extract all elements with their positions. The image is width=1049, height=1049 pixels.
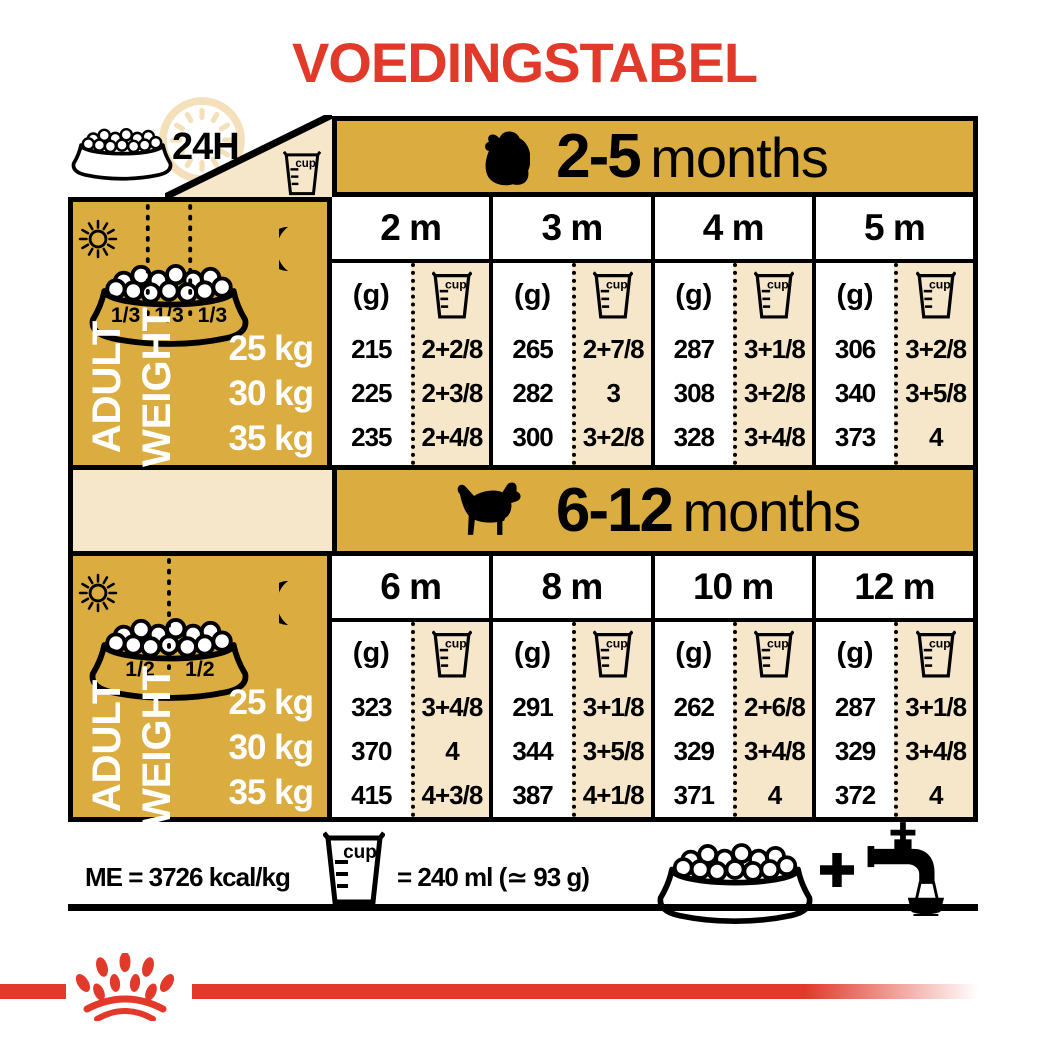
grams-value: 265 — [493, 327, 572, 371]
cup-value: 4+3/8 — [415, 773, 490, 817]
grams-value: 329 — [816, 729, 895, 773]
weight-rows-2: 25 kg 30 kg 35 kg — [229, 680, 314, 815]
svg-text:cup: cup — [445, 636, 467, 650]
age-range: 6-12 — [556, 476, 672, 545]
cup-value: 3+1/8 — [898, 686, 973, 730]
moon-icon — [279, 224, 311, 274]
feeding-grid-2-5-months: 2 m (g) 215 225 235 cup 2+2/8 2+3 — [332, 197, 978, 470]
cup-value: 4 — [898, 773, 973, 817]
grams-value: 323 — [332, 686, 411, 730]
weight-row: 30 kg — [229, 725, 314, 770]
grams-value: 282 — [493, 371, 572, 415]
cup-value: 3+4/8 — [737, 415, 812, 459]
svg-text:cup: cup — [767, 278, 789, 292]
brand-stripe-left — [0, 984, 66, 999]
cup-icon-label: cup — [295, 158, 315, 170]
cup-value: 3+4/8 — [415, 686, 490, 730]
month-header: 6 m — [332, 556, 489, 622]
grams-value: 373 — [816, 415, 895, 459]
weight-row: 35 kg — [229, 770, 314, 815]
cup-value: 4 — [737, 773, 812, 817]
month-header: 4 m — [655, 197, 812, 263]
svg-text:cup: cup — [606, 278, 628, 292]
cup-value: 3 — [576, 371, 651, 415]
grams-value: 287 — [816, 686, 895, 730]
measuring-cup-icon: cup — [432, 629, 472, 679]
month-header: 8 m — [493, 556, 650, 622]
measuring-cup-icon: cup — [432, 270, 472, 320]
measuring-cup-icon: cup — [754, 629, 794, 679]
cup-value: 4 — [898, 415, 973, 459]
age-range-unit: months — [682, 480, 860, 543]
svg-text:cup: cup — [445, 278, 467, 292]
month-column-10m: 10 m (g) 262 329 371 cup 2+6/8 3+ — [651, 556, 812, 817]
adult-weight-panel-2: 1/2 1/2 ADULT WEIGHT 25 kg 30 kg 35 kg — [68, 556, 332, 822]
dog-silhouette-icon — [450, 480, 530, 542]
grams-unit-label: (g) — [332, 622, 411, 686]
grams-value: 235 — [332, 415, 411, 459]
grams-value: 371 — [655, 773, 734, 817]
grams-value: 308 — [655, 371, 734, 415]
grams-unit-label: (g) — [655, 622, 734, 686]
measuring-cup-icon: cup — [916, 270, 956, 320]
month-header: 10 m — [655, 556, 812, 622]
measuring-cup-icon: cup — [593, 629, 633, 679]
section-header-2-5-months: 2-5 months — [332, 116, 978, 197]
food-bowl-icon — [655, 828, 815, 926]
brand-stripe-right — [192, 984, 978, 999]
cup-value: 2+6/8 — [737, 686, 812, 730]
grams-value: 372 — [816, 773, 895, 817]
grams-value: 329 — [655, 729, 734, 773]
grams-value: 340 — [816, 371, 895, 415]
feeding-table-infographic: VOEDINGSTABEL cup 24H — [0, 0, 1049, 1049]
grams-unit-label: (g) — [493, 263, 572, 327]
moon-icon — [279, 578, 311, 628]
cup-value: 3+1/8 — [737, 327, 812, 371]
grams-value: 344 — [493, 729, 572, 773]
puppy-silhouette-icon — [482, 128, 530, 186]
month-column-12m: 12 m (g) 287 329 372 cup 3+1/8 3+ — [812, 556, 973, 817]
cup-value: 3+4/8 — [898, 729, 973, 773]
month-header: 2 m — [332, 197, 489, 263]
grams-value: 306 — [816, 327, 895, 371]
grams-value: 328 — [655, 415, 734, 459]
grams-value: 225 — [332, 371, 411, 415]
month-column-5m: 5 m (g) 306 340 373 cup 3+2/8 3+5 — [812, 197, 973, 465]
svg-text:cup: cup — [606, 636, 628, 650]
grams-unit-label: (g) — [332, 263, 411, 327]
age-range: 2-5 — [556, 122, 640, 191]
measuring-cup-icon: cup — [593, 270, 633, 320]
svg-text:cup: cup — [929, 636, 951, 650]
adult-weight-panel-1: 1/3 1/3 1/3 ADULT WEIGHT 25 kg 30 kg 35 … — [68, 197, 332, 470]
weight-row: 35 kg — [229, 416, 314, 461]
grams-unit-label: (g) — [816, 622, 895, 686]
measuring-cup-icon: cup — [916, 629, 956, 679]
month-header: 5 m — [816, 197, 973, 263]
grams-value: 287 — [655, 327, 734, 371]
food-bowl-icon — [70, 118, 174, 182]
adult-weight-label: ADULT WEIGHT — [82, 302, 192, 472]
cup-value: 3+2/8 — [576, 415, 651, 459]
grams-value: 291 — [493, 686, 572, 730]
cup-value: 3+1/8 — [576, 686, 651, 730]
plus-icon — [820, 853, 854, 887]
measuring-cup-icon: cup — [323, 830, 385, 906]
grams-value: 300 — [493, 415, 572, 459]
section-header-6-12-months: 6-12 months — [332, 470, 978, 556]
cup-value: 2+3/8 — [415, 371, 490, 415]
month-header: 12 m — [816, 556, 973, 622]
age-range-unit: months — [650, 126, 828, 189]
cup-value: 3+5/8 — [898, 371, 973, 415]
grams-value: 415 — [332, 773, 411, 817]
footer-divider — [68, 904, 978, 911]
cup-value: 3+2/8 — [737, 371, 812, 415]
cup-icon-label: cup — [343, 842, 377, 863]
grams-value: 262 — [655, 686, 734, 730]
cup-value: 2+2/8 — [415, 327, 490, 371]
month-column-4m: 4 m (g) 287 308 328 cup 3+1/8 3+2 — [651, 197, 812, 465]
bowl-fraction: 1/3 — [198, 304, 228, 327]
grams-unit-label: (g) — [816, 263, 895, 327]
cup-value: 2+4/8 — [415, 415, 490, 459]
cup-value: 3+2/8 — [898, 327, 973, 371]
month-column-2m: 2 m (g) 215 225 235 cup 2+2/8 2+3 — [332, 197, 489, 465]
24h-label: 24H — [172, 126, 239, 169]
grams-unit-label: (g) — [655, 263, 734, 327]
water-tap-icon — [858, 822, 946, 916]
metabolizable-energy-label: ME = 3726 kcal/kg — [85, 862, 290, 893]
grams-unit-label: (g) — [493, 622, 572, 686]
page-title: VOEDINGSTABEL — [0, 30, 1049, 95]
grams-value: 370 — [332, 729, 411, 773]
weight-row: 30 kg — [229, 371, 314, 416]
cup-value: 4+1/8 — [576, 773, 651, 817]
svg-text:cup: cup — [929, 278, 951, 292]
weight-rows-1: 25 kg 30 kg 35 kg — [229, 326, 314, 461]
cup-value: 4 — [415, 729, 490, 773]
grams-value: 387 — [493, 773, 572, 817]
crown-paw-logo — [68, 953, 182, 1021]
cup-equivalence-label: = 240 ml (≃ 93 g) — [397, 862, 589, 893]
feeding-grid-6-12-months: 6 m (g) 323 370 415 cup 3+4/8 4 — [332, 556, 978, 822]
measuring-cup-icon: cup — [283, 150, 321, 196]
month-column-6m: 6 m (g) 323 370 415 cup 3+4/8 4 — [332, 556, 489, 817]
cup-value: 3+5/8 — [576, 729, 651, 773]
weight-row: 25 kg — [229, 326, 314, 371]
weight-row: 25 kg — [229, 680, 314, 725]
grams-value: 215 — [332, 327, 411, 371]
month-column-8m: 8 m (g) 291 344 387 cup 3+1/8 3+5 — [489, 556, 650, 817]
month-header: 3 m — [493, 197, 650, 263]
cup-value: 3+4/8 — [737, 729, 812, 773]
adult-weight-label: ADULT WEIGHT — [82, 661, 192, 831]
spacer-cell — [68, 470, 332, 556]
svg-text:cup: cup — [767, 636, 789, 650]
measuring-cup-icon: cup — [754, 270, 794, 320]
cup-value: 2+7/8 — [576, 327, 651, 371]
month-column-3m: 3 m (g) 265 282 300 cup 2+7/8 3 — [489, 197, 650, 465]
